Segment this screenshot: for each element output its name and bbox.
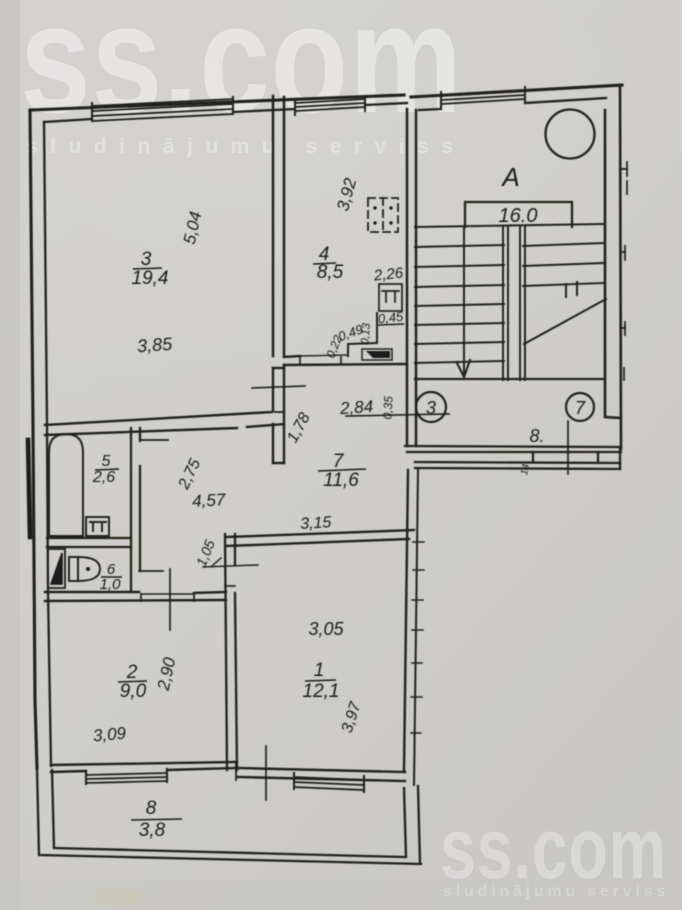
- svg-text:8.: 8.: [529, 426, 544, 446]
- svg-text:1: 1: [314, 660, 325, 681]
- svg-text:8: 8: [146, 798, 157, 819]
- svg-text:3,15: 3,15: [300, 514, 332, 533]
- svg-text:2,6: 2,6: [92, 469, 115, 486]
- svg-text:sludinājumu serviss: sludinājumu serviss: [26, 135, 465, 158]
- svg-text:3,8: 3,8: [139, 820, 166, 841]
- svg-text:sludinājumu serviss: sludinājumu serviss: [443, 883, 669, 900]
- svg-text:9,0: 9,0: [120, 681, 147, 702]
- svg-text:7: 7: [575, 398, 586, 418]
- svg-text:A: A: [500, 162, 519, 192]
- svg-text:1,0: 1,0: [100, 576, 122, 593]
- svg-text:2: 2: [126, 662, 138, 683]
- svg-text:11,6: 11,6: [323, 470, 359, 491]
- svg-text:0,35: 0,35: [380, 395, 395, 419]
- svg-text:3,05: 3,05: [308, 619, 344, 639]
- svg-text:0,13: 0,13: [359, 322, 373, 345]
- svg-text:7: 7: [333, 451, 345, 472]
- svg-text:4,57: 4,57: [192, 490, 227, 511]
- svg-text:2,84: 2,84: [338, 397, 373, 418]
- svg-text:ss.com: ss.com: [20, 0, 463, 146]
- svg-text:3: 3: [141, 249, 152, 270]
- svg-text:3,09: 3,09: [92, 724, 127, 746]
- svg-text:2,26: 2,26: [372, 264, 404, 284]
- svg-text:3: 3: [426, 398, 436, 418]
- svg-text:12,1: 12,1: [303, 681, 340, 702]
- svg-text:16.0: 16.0: [499, 205, 538, 227]
- svg-text:5: 5: [102, 453, 111, 470]
- svg-text:3,85: 3,85: [136, 334, 173, 356]
- svg-text:8,5: 8,5: [317, 262, 344, 283]
- svg-text:19,4: 19,4: [132, 268, 169, 289]
